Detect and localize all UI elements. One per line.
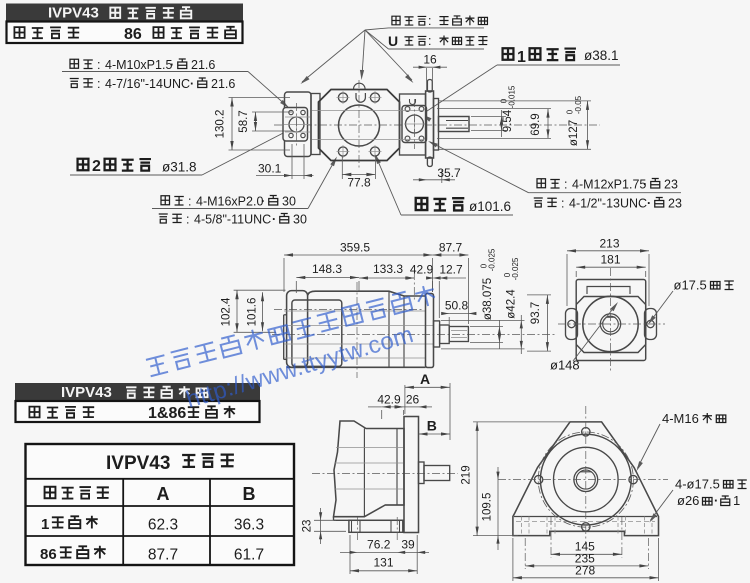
svg-text:·: · — [272, 213, 276, 227]
svg-text:21.6: 21.6 — [191, 58, 215, 72]
svg-text:148.3: 148.3 — [312, 262, 342, 276]
svg-text:9.54: 9.54 — [502, 109, 514, 132]
svg-text:16: 16 — [423, 53, 437, 67]
svg-text:87.7: 87.7 — [148, 547, 178, 564]
svg-text:ø38.075: ø38.075 — [482, 278, 494, 320]
svg-text:ø38.1: ø38.1 — [584, 48, 619, 63]
svg-text:133.3: 133.3 — [373, 262, 403, 276]
svg-text:1: 1 — [733, 493, 740, 508]
svg-text:76.2: 76.2 — [367, 538, 391, 552]
svg-text:219: 219 — [461, 465, 473, 484]
svg-text:131: 131 — [373, 556, 393, 570]
svg-text:42.9: 42.9 — [377, 393, 401, 407]
svg-text:·: · — [190, 77, 194, 91]
svg-text:69.9: 69.9 — [530, 113, 542, 135]
svg-text:B: B — [243, 484, 256, 504]
svg-text:IVPV43: IVPV43 — [106, 453, 170, 474]
svg-text:30.1: 30.1 — [258, 162, 282, 176]
svg-text:23: 23 — [668, 197, 682, 211]
svg-text:·: · — [643, 178, 647, 192]
svg-text:-0.05: -0.05 — [574, 95, 583, 114]
svg-text:102.4: 102.4 — [221, 297, 233, 326]
svg-text:IVPV43: IVPV43 — [61, 384, 112, 401]
svg-text:ø26: ø26 — [677, 493, 699, 508]
svg-text:A: A — [157, 484, 170, 504]
svg-text:·: · — [647, 197, 651, 211]
svg-text:101.6: 101.6 — [247, 298, 259, 327]
svg-text:93.7: 93.7 — [530, 302, 542, 324]
svg-text:4-M16xP2.0: 4-M16xP2.0 — [196, 195, 263, 209]
svg-text:50.8: 50.8 — [445, 299, 469, 313]
svg-text:30: 30 — [293, 213, 307, 227]
svg-text:1&86: 1&86 — [148, 405, 186, 422]
svg-text:-0.025: -0.025 — [511, 257, 520, 280]
svg-text:77.8: 77.8 — [347, 176, 371, 190]
svg-text:·: · — [261, 195, 265, 209]
svg-text:130.2: 130.2 — [215, 110, 227, 139]
svg-text:A: A — [420, 371, 430, 387]
svg-text:-0.025: -0.025 — [488, 248, 497, 271]
svg-text::: : — [428, 14, 431, 28]
svg-text:12.7: 12.7 — [439, 263, 463, 277]
svg-text:58.7: 58.7 — [238, 110, 250, 132]
svg-text:30: 30 — [282, 195, 296, 209]
svg-text:4-1/2"-13UNC: 4-1/2"-13UNC — [569, 197, 647, 211]
svg-text::: : — [561, 197, 564, 211]
svg-text:213: 213 — [599, 237, 619, 251]
svg-text:ø42.4: ø42.4 — [506, 289, 518, 319]
svg-text:4-5/8"-11UNC: 4-5/8"-11UNC — [194, 213, 271, 227]
svg-text:21.6: 21.6 — [211, 77, 235, 91]
svg-text:ø17.5: ø17.5 — [674, 278, 707, 293]
svg-text:181: 181 — [600, 253, 620, 267]
svg-text:IVPV43: IVPV43 — [48, 5, 99, 22]
svg-text:86: 86 — [124, 26, 142, 43]
svg-text:4-M12xP1.75: 4-M12xP1.75 — [572, 178, 646, 192]
svg-text::: : — [428, 34, 431, 48]
svg-text::: : — [188, 195, 191, 209]
svg-text:35.7: 35.7 — [437, 166, 461, 180]
svg-text:39: 39 — [401, 538, 415, 552]
svg-text:ø31.8: ø31.8 — [162, 160, 197, 175]
svg-text:26: 26 — [406, 393, 420, 407]
svg-text::: : — [97, 58, 100, 72]
svg-text:B: B — [427, 418, 437, 434]
svg-text:4-M10xP1.5: 4-M10xP1.5 — [105, 58, 172, 72]
svg-text:62.3: 62.3 — [148, 517, 178, 534]
svg-text:ø148: ø148 — [550, 358, 580, 373]
svg-text::: : — [97, 77, 100, 91]
svg-text:4-ø17.5: 4-ø17.5 — [675, 477, 720, 492]
svg-text:·: · — [714, 493, 718, 508]
svg-text::: : — [186, 213, 189, 227]
svg-text:86: 86 — [40, 546, 57, 563]
svg-text:23: 23 — [664, 178, 678, 192]
svg-text:4-7/16"-14UNC: 4-7/16"-14UNC — [105, 77, 190, 91]
svg-text:·: · — [170, 58, 174, 72]
svg-text::: : — [564, 178, 567, 192]
svg-text:87.7: 87.7 — [439, 241, 463, 255]
svg-text:ø127: ø127 — [568, 120, 580, 146]
svg-text:61.7: 61.7 — [234, 547, 264, 564]
svg-text:1: 1 — [517, 49, 526, 66]
svg-text:U: U — [388, 33, 398, 49]
svg-text:42.9: 42.9 — [410, 263, 434, 277]
svg-text:4-M16: 4-M16 — [662, 411, 699, 426]
svg-text:1: 1 — [41, 516, 49, 533]
svg-text:ø101.6: ø101.6 — [469, 199, 511, 214]
svg-text:109.5: 109.5 — [482, 493, 494, 522]
svg-text:2: 2 — [92, 158, 101, 175]
svg-text:-0.015: -0.015 — [508, 85, 517, 108]
svg-text:278: 278 — [575, 564, 595, 578]
svg-text:359.5: 359.5 — [340, 241, 370, 255]
svg-text:23: 23 — [302, 520, 314, 533]
svg-text:36.3: 36.3 — [234, 517, 264, 534]
